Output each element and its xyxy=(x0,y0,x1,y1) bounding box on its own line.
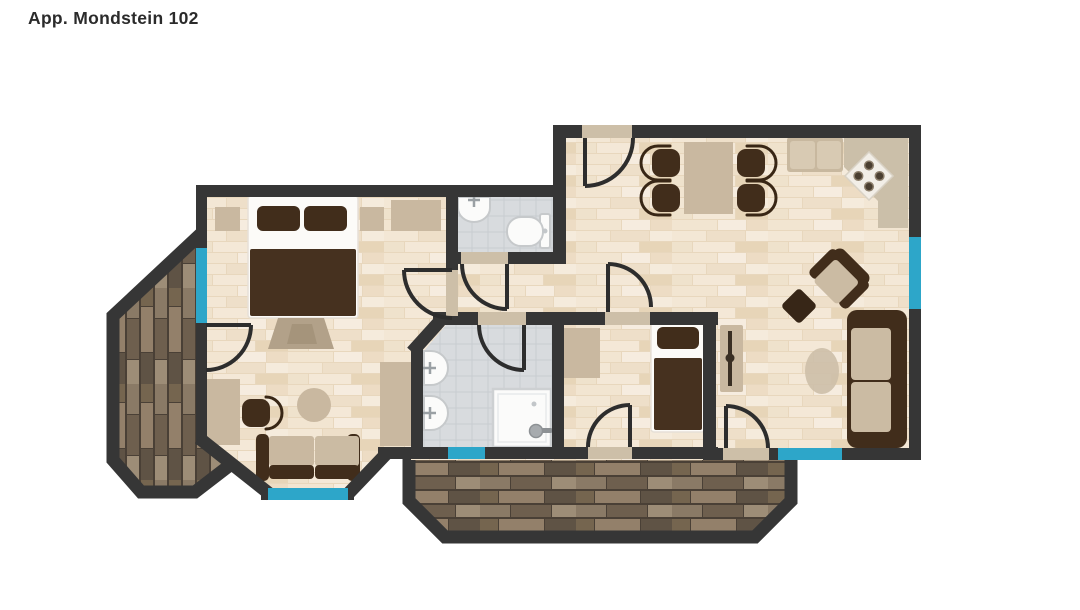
wall-top-bedroom xyxy=(196,185,566,197)
window-bathroom xyxy=(448,447,485,459)
nightstand-left xyxy=(215,207,240,231)
office-chair-seat xyxy=(242,399,270,427)
desk xyxy=(207,379,240,445)
single-bed-pillow xyxy=(657,327,699,349)
threshold-bedroom2-balcony xyxy=(588,447,632,459)
wc-toilet xyxy=(507,214,550,248)
rug xyxy=(805,348,839,394)
sofa-cushion-bottom xyxy=(851,382,891,432)
wardrobe-small xyxy=(564,328,600,378)
kitchen-bench xyxy=(787,137,843,172)
wall-corridor-south xyxy=(433,312,718,325)
chair-seat xyxy=(652,149,680,177)
bench-cushion-right xyxy=(817,141,841,169)
window-living-bottom xyxy=(778,448,842,460)
tv-mount xyxy=(726,354,735,363)
round-table xyxy=(297,388,331,422)
chair-seat xyxy=(652,184,680,212)
sofa-seat-right xyxy=(315,465,359,479)
wall-left-living xyxy=(553,125,566,262)
sofa-living xyxy=(847,310,907,448)
bed-blanket xyxy=(250,249,356,316)
shower xyxy=(493,389,552,447)
chair-seat xyxy=(737,184,765,212)
threshold-living-balcony xyxy=(723,448,769,460)
shower-handle xyxy=(530,425,543,438)
double-bed xyxy=(248,196,358,318)
bed-bench xyxy=(268,318,334,349)
shower-drain xyxy=(532,402,537,407)
chair-seat xyxy=(737,149,765,177)
wall-bedroom2-right xyxy=(703,312,716,459)
window-bay xyxy=(268,488,348,500)
floor-plan xyxy=(0,0,1080,610)
window-bedroom-left xyxy=(196,248,207,323)
threshold-wc xyxy=(461,252,508,264)
sofa-arm-left xyxy=(256,434,269,481)
wall-bathroom-left xyxy=(411,345,423,459)
toilet-button xyxy=(543,229,548,234)
bench-cushion-left xyxy=(790,141,815,169)
sofa-bedroom xyxy=(256,434,360,481)
nightstand-right xyxy=(360,207,384,231)
wall-bath-bed2-divider xyxy=(552,312,564,459)
single-bed-blanket xyxy=(654,358,702,430)
shower-tray xyxy=(493,389,551,447)
pillow-left xyxy=(257,206,300,231)
sofa-cushion-right xyxy=(315,436,359,466)
window-living-right xyxy=(909,237,921,309)
sofa-seat-left xyxy=(269,465,314,479)
threshold-bedroom2 xyxy=(605,312,650,325)
tv-sideboard xyxy=(720,325,743,392)
balcony-bottom-deck xyxy=(409,458,791,537)
single-bed xyxy=(651,322,705,432)
wardrobe-master-2 xyxy=(380,362,411,446)
wardrobe-master xyxy=(391,200,441,231)
toilet-bowl xyxy=(507,217,543,246)
floorplan-page: App. Mondstein 102 xyxy=(0,0,1080,610)
pillow-right xyxy=(304,206,347,231)
threshold-bedroom xyxy=(446,270,458,316)
shower-handle-bar xyxy=(542,428,552,433)
bench-throw xyxy=(287,324,317,344)
threshold-entrance xyxy=(582,125,632,138)
sofa-cushion-top xyxy=(851,328,891,380)
dining-table xyxy=(684,142,733,214)
balcony-bottom xyxy=(409,455,791,537)
threshold-bathroom xyxy=(478,312,526,325)
sofa-cushion-left xyxy=(269,436,314,466)
